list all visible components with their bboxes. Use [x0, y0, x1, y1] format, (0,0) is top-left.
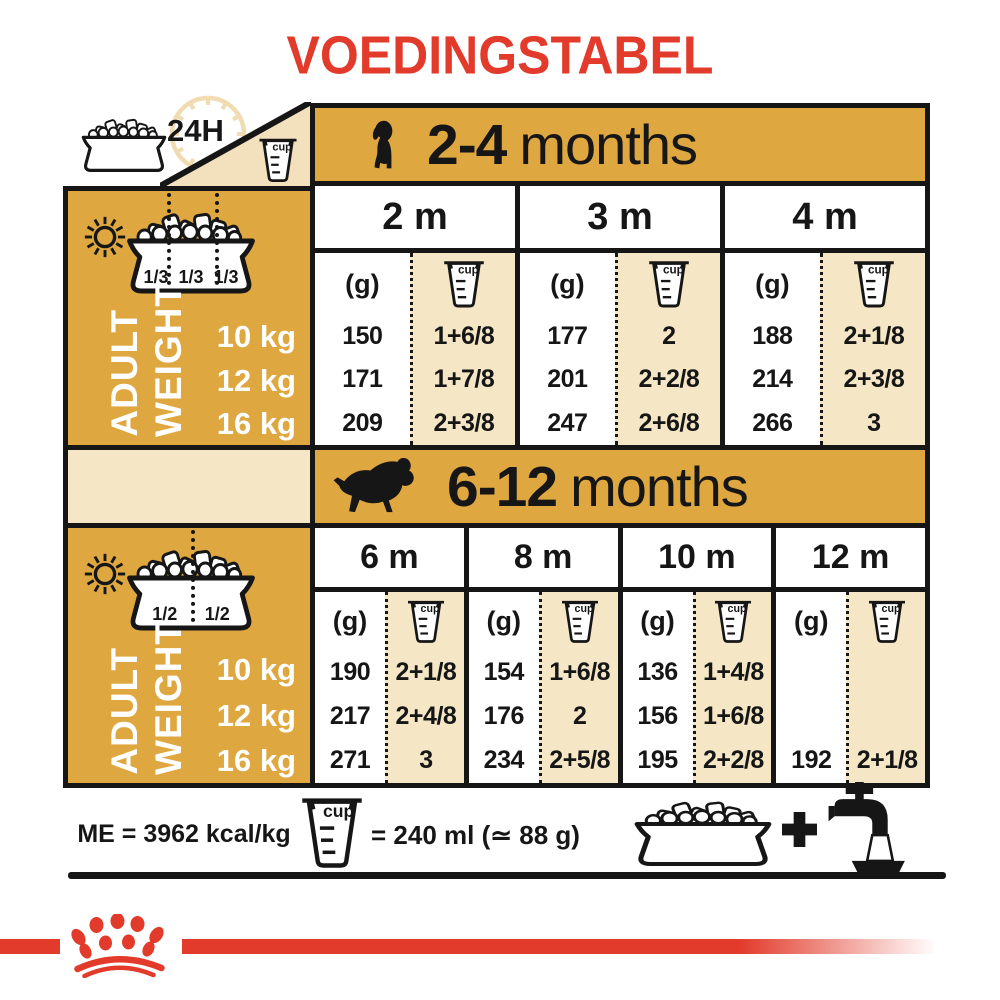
age-range-unit: months: [519, 112, 697, 177]
grams-value: 150: [315, 315, 410, 358]
page-title: VOEDINGSTABEL: [0, 24, 1000, 87]
cups-subcolumn: 1+4/81+6/82+2/8: [693, 592, 772, 783]
month-column: 12 m(g)1922+1/8: [771, 528, 925, 783]
adult-weight-value: 10 kg: [180, 315, 300, 359]
food-bowl-icon: [627, 792, 779, 872]
month-column: 8 m(g)1541762341+6/822+5/8: [464, 528, 618, 783]
cups-subcolumn: 22+2/82+6/8: [615, 253, 720, 445]
moon-icon: [270, 216, 302, 256]
cups-subcolumn: 2+1/8: [846, 592, 925, 783]
measuring-cup-icon: [442, 258, 486, 310]
grams-value: 271: [315, 739, 385, 783]
adult-weight-value: 12 kg: [180, 693, 300, 739]
brand-band-right: [182, 939, 968, 954]
cups-value: 1+7/8: [413, 358, 515, 401]
cups-value: 2+1/8: [388, 650, 464, 694]
grams-value: [776, 650, 846, 694]
grams-value: 156: [623, 694, 693, 738]
spacer-cell: [63, 445, 310, 528]
bowl-divider-dotted-line: [191, 530, 195, 622]
month-column: 6 m(g)1902172712+1/82+4/83: [315, 528, 464, 783]
grams-subcolumn: (g)154176234: [469, 592, 539, 783]
cups-value: [849, 694, 925, 738]
month-column: 2 m(g)1501712091+6/81+7/82+3/8: [315, 186, 515, 445]
cups-value: 2+3/8: [823, 358, 925, 401]
grams-subcolumn: (g)150171209: [315, 253, 410, 445]
cups-value: 2: [618, 315, 720, 358]
adult-weight-panel-2-4-months: 1/31/31/3 ADULT WEIGHT 10 kg12 kg16 kg: [63, 186, 310, 445]
adult-weight-values: 10 kg12 kg16 kg: [180, 315, 300, 446]
cups-value: 3: [388, 739, 464, 783]
grams-unit-label: (g): [469, 592, 539, 650]
grams-value: 217: [315, 694, 385, 738]
metabolizable-energy-label: ME = 3962 kcal/kg: [62, 820, 306, 849]
bowl-divider-dotted-line: [215, 193, 219, 285]
grams-subcolumn: (g)190217271: [315, 592, 385, 783]
adult-weight-panel-6-12-months: 1/21/2 ADULT WEIGHT 10 kg12 kg16 kg: [63, 528, 310, 788]
grams-value: 171: [315, 358, 410, 401]
water-tap-icon: [819, 782, 905, 878]
month-header: 4 m: [725, 186, 925, 253]
cups-value: 3: [823, 402, 925, 445]
grams-value: 234: [469, 739, 539, 783]
grams-value: 266: [725, 402, 820, 445]
grams-value: 154: [469, 650, 539, 694]
measuring-cup-icon: [852, 258, 896, 310]
grams-value: 188: [725, 315, 820, 358]
grams-subcolumn: (g)192: [776, 592, 846, 783]
grams-value: 177: [520, 315, 615, 358]
grams-unit-label: (g): [315, 253, 410, 315]
adult-weight-value: 12 kg: [180, 359, 300, 403]
cup-equivalence-label: = 240 ml (≃ 88 g): [371, 820, 580, 851]
cups-subcolumn: 2+1/82+4/83: [385, 592, 464, 783]
feeding-columns-2-4-months: 2 m(g)1501712091+6/81+7/82+3/83 m(g)1772…: [310, 186, 930, 445]
adult-weight-values: 10 kg12 kg16 kg: [180, 647, 300, 784]
food-bowl-icon: [77, 111, 171, 177]
adult-weight-value: 16 kg: [180, 402, 300, 446]
feeding-columns-6-12-months: 6 m(g)1902172712+1/82+4/838 m(g)15417623…: [310, 528, 930, 788]
cups-value: 2: [542, 694, 618, 738]
grams-value: [776, 694, 846, 738]
cups-value: 2+4/8: [388, 694, 464, 738]
brand-band-left: [0, 939, 60, 954]
adult-label: ADULT: [106, 647, 143, 775]
puppy-silhouette-icon: [369, 118, 397, 172]
cups-value: 2+1/8: [849, 739, 925, 783]
age-range-label: 6-12: [447, 454, 557, 520]
age-section-header-2-4-months: 2-4 months: [310, 103, 930, 186]
month-header: 8 m: [469, 528, 618, 592]
cups-value: 1+6/8: [413, 315, 515, 358]
adult-weight-axis-label: ADULT WEIGHT: [106, 621, 187, 775]
grams-value: 214: [725, 358, 820, 401]
cups-value: 2+2/8: [696, 739, 772, 783]
cups-value: 1+6/8: [696, 694, 772, 738]
grams-value: 209: [315, 402, 410, 445]
cups-value: 2+5/8: [542, 739, 618, 783]
grams-subcolumn: (g)188214266: [725, 253, 820, 445]
grams-unit-label: (g): [725, 253, 820, 315]
grams-value: 136: [623, 650, 693, 694]
cups-value: 2+1/8: [823, 315, 925, 358]
cups-value: 1+6/8: [542, 650, 618, 694]
daily-ration-corner-cell: 24H: [63, 103, 310, 186]
month-header: 10 m: [623, 528, 772, 592]
cups-subcolumn: 1+6/81+7/82+3/8: [410, 253, 515, 445]
measuring-cup-icon: [647, 258, 691, 310]
month-header: 2 m: [315, 186, 515, 253]
cups-value: 1+4/8: [696, 650, 772, 694]
royal-canin-crown-logo: [67, 914, 174, 978]
adult-weight-axis-label: ADULT WEIGHT: [106, 283, 187, 437]
month-column: 3 m(g)17720124722+2/82+6/8: [515, 186, 720, 445]
feeding-table-infographic: VOEDINGSTABEL 24H 2-4 months 2 m(g)15017…: [0, 0, 1000, 1000]
grams-subcolumn: (g)136156195: [623, 592, 693, 783]
cups-value: 2+2/8: [618, 358, 720, 401]
adult-label: ADULT: [106, 309, 143, 437]
grams-value: 201: [520, 358, 615, 401]
grams-value: 192: [776, 739, 846, 783]
measuring-cup-icon: [299, 791, 365, 874]
grams-unit-label: (g): [776, 592, 846, 650]
grams-unit-label: (g): [623, 592, 693, 650]
bottom-divider-line: [68, 872, 946, 879]
month-header: 3 m: [520, 186, 720, 253]
grams-subcolumn: (g)177201247: [520, 253, 615, 445]
measuring-cup-icon: [713, 598, 753, 645]
grams-value: 247: [520, 402, 615, 445]
age-section-header-6-12-months: 6-12 months: [310, 445, 930, 528]
adult-weight-value: 10 kg: [180, 647, 300, 693]
bowl-fraction-label: 1/2: [191, 604, 244, 625]
plus-icon: +: [782, 812, 817, 847]
cups-subcolumn: 2+1/82+3/83: [820, 253, 925, 445]
cups-subcolumn: 1+6/822+5/8: [539, 592, 618, 783]
grams-value: 190: [315, 650, 385, 694]
measuring-cup-icon: [256, 136, 300, 184]
age-range-label: 2-4: [427, 112, 506, 178]
moon-icon: [270, 553, 302, 593]
adult-weight-value: 16 kg: [180, 738, 300, 784]
grams-unit-label: (g): [315, 592, 385, 650]
measuring-cup-icon: [560, 598, 600, 645]
bowl-divider-dotted-line: [167, 193, 171, 285]
grams-unit-label: (g): [520, 253, 615, 315]
cups-value: 2+6/8: [618, 402, 720, 445]
month-column: 10 m(g)1361561951+4/81+6/82+2/8: [618, 528, 772, 783]
dog-silhouette-icon: [333, 457, 431, 517]
month-header: 6 m: [315, 528, 464, 592]
cups-value: 2+3/8: [413, 402, 515, 445]
cups-value: [849, 650, 925, 694]
grams-value: 176: [469, 694, 539, 738]
month-column: 4 m(g)1882142662+1/82+3/83: [720, 186, 925, 445]
measuring-cup-icon: [867, 598, 907, 645]
age-range-unit: months: [570, 454, 748, 519]
measuring-cup-icon: [406, 598, 446, 645]
grams-value: 195: [623, 739, 693, 783]
month-header: 12 m: [776, 528, 925, 592]
